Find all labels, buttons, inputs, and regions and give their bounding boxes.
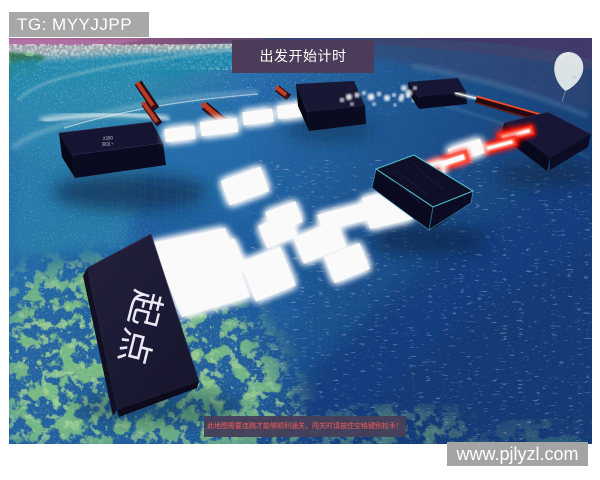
svg-text:2350: 2350	[103, 135, 114, 141]
